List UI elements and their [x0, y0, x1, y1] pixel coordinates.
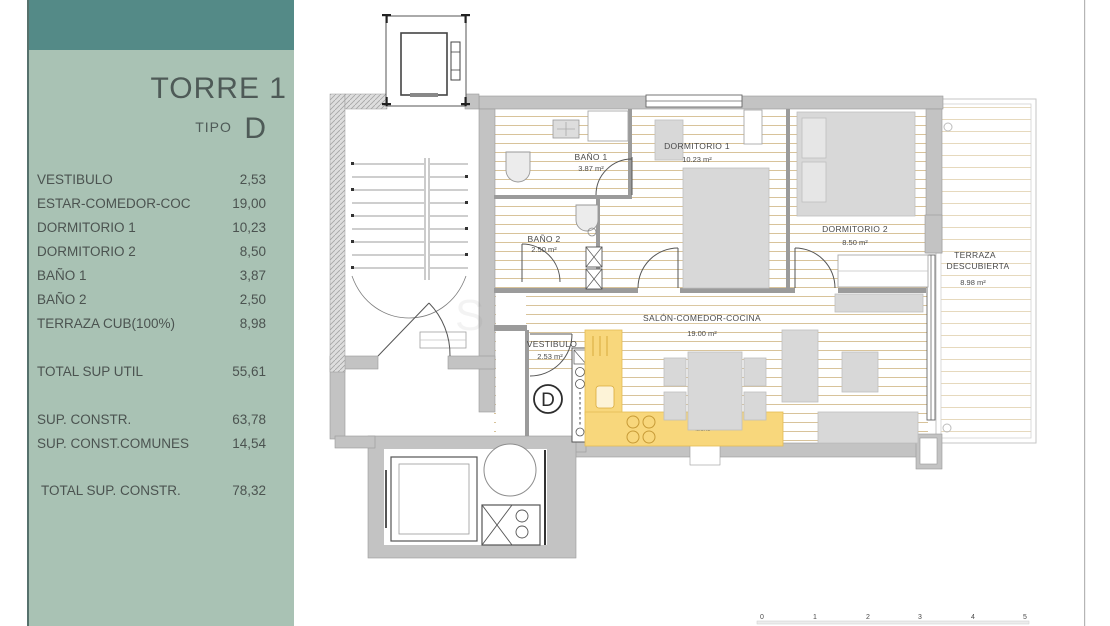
salon-label: SALÓN-COMEDOR-COCINA: [643, 313, 761, 323]
floor-plan-sheet: MICRO S: [0, 0, 1110, 626]
unit-marker: D: [534, 385, 562, 413]
sidebar-header-band: [29, 0, 294, 50]
terraza-area: 8.98 m²: [960, 278, 986, 287]
svg-text:S: S: [455, 291, 484, 340]
bano1-toilet: [506, 152, 530, 182]
vestibulo-label: VESTIBULO: [527, 339, 577, 349]
salon-area: 19.00 m²: [687, 329, 717, 338]
stair-tread-dots: [351, 162, 468, 269]
sofa: [818, 412, 918, 443]
elevator-shaft-top: [382, 14, 470, 106]
svg-text:1: 1: [813, 614, 817, 621]
armchair: [842, 352, 878, 392]
tower-title: TORRE 1: [151, 72, 287, 106]
total-util-row: TOTAL SUP UTIL 55,61: [29, 364, 294, 386]
service-shaft-bottom: [335, 436, 576, 558]
room-row: DORMITORIO 2 8,50: [29, 244, 294, 266]
scale-bar: 0 1 2 3 4 5: [757, 614, 1029, 624]
unit-marker-letter: D: [541, 390, 555, 411]
svg-text:3: 3: [918, 614, 922, 621]
dorm1-label: DORMITORIO 1: [664, 141, 730, 151]
sup-comunes-row: SUP. CONST.COMUNES 14,54: [29, 436, 294, 458]
spec-sidebar: TORRE 1 TIPO D VESTIBULO 2,53 ESTAR-COME…: [27, 0, 294, 626]
dining-table: [688, 352, 742, 430]
room-row: BAÑO 2 2,50: [29, 292, 294, 314]
terraza-deck: [936, 99, 1036, 443]
room-row: DORMITORIO 1 10,23: [29, 220, 294, 242]
tv-unit: [782, 330, 818, 402]
terraza-label-1: TERRAZA: [954, 250, 996, 260]
room-row: ESTAR-COMEDOR-COC 19,00: [29, 196, 294, 218]
terraza-label-2: DESCUBIERTA: [947, 261, 1010, 271]
total-constr-row: TOTAL SUP. CONSTR. 78,32: [29, 483, 294, 505]
sup-constr-row: SUP. CONSTR. 63,78: [29, 412, 294, 434]
bano1-area: 3.87 m²: [578, 164, 604, 173]
tipo-label: TIPO: [195, 119, 232, 135]
hatched-walls: [330, 94, 387, 372]
dorm1-area: 10.23 m²: [682, 155, 712, 164]
bano2-label: BAÑO 2: [528, 234, 561, 244]
dorm2-label: DORMITORIO 2: [822, 224, 888, 234]
dorm2-area: 8.50 m²: [842, 238, 868, 247]
room-row: TERRAZA CUB(100%) 8,98: [29, 316, 294, 338]
bano2-toilet: [576, 205, 598, 231]
svg-text:0: 0: [760, 614, 764, 621]
svg-text:4: 4: [971, 614, 975, 621]
svg-text:5: 5: [1023, 614, 1027, 621]
tipo-value: D: [244, 112, 266, 145]
vestibulo-area: 2.53 m²: [537, 352, 563, 361]
stairwell: [352, 158, 468, 348]
svg-text:2: 2: [866, 614, 870, 621]
bano2-area: 2.50 m²: [531, 245, 557, 254]
dorm1-bed: [683, 168, 769, 288]
sheet-border-line: [1084, 0, 1085, 626]
room-row: VESTIBULO 2,53: [29, 172, 294, 194]
room-row: BAÑO 1 3,87: [29, 268, 294, 290]
tipo-row: TIPO D: [195, 112, 266, 146]
bano1-label: BAÑO 1: [575, 152, 608, 162]
